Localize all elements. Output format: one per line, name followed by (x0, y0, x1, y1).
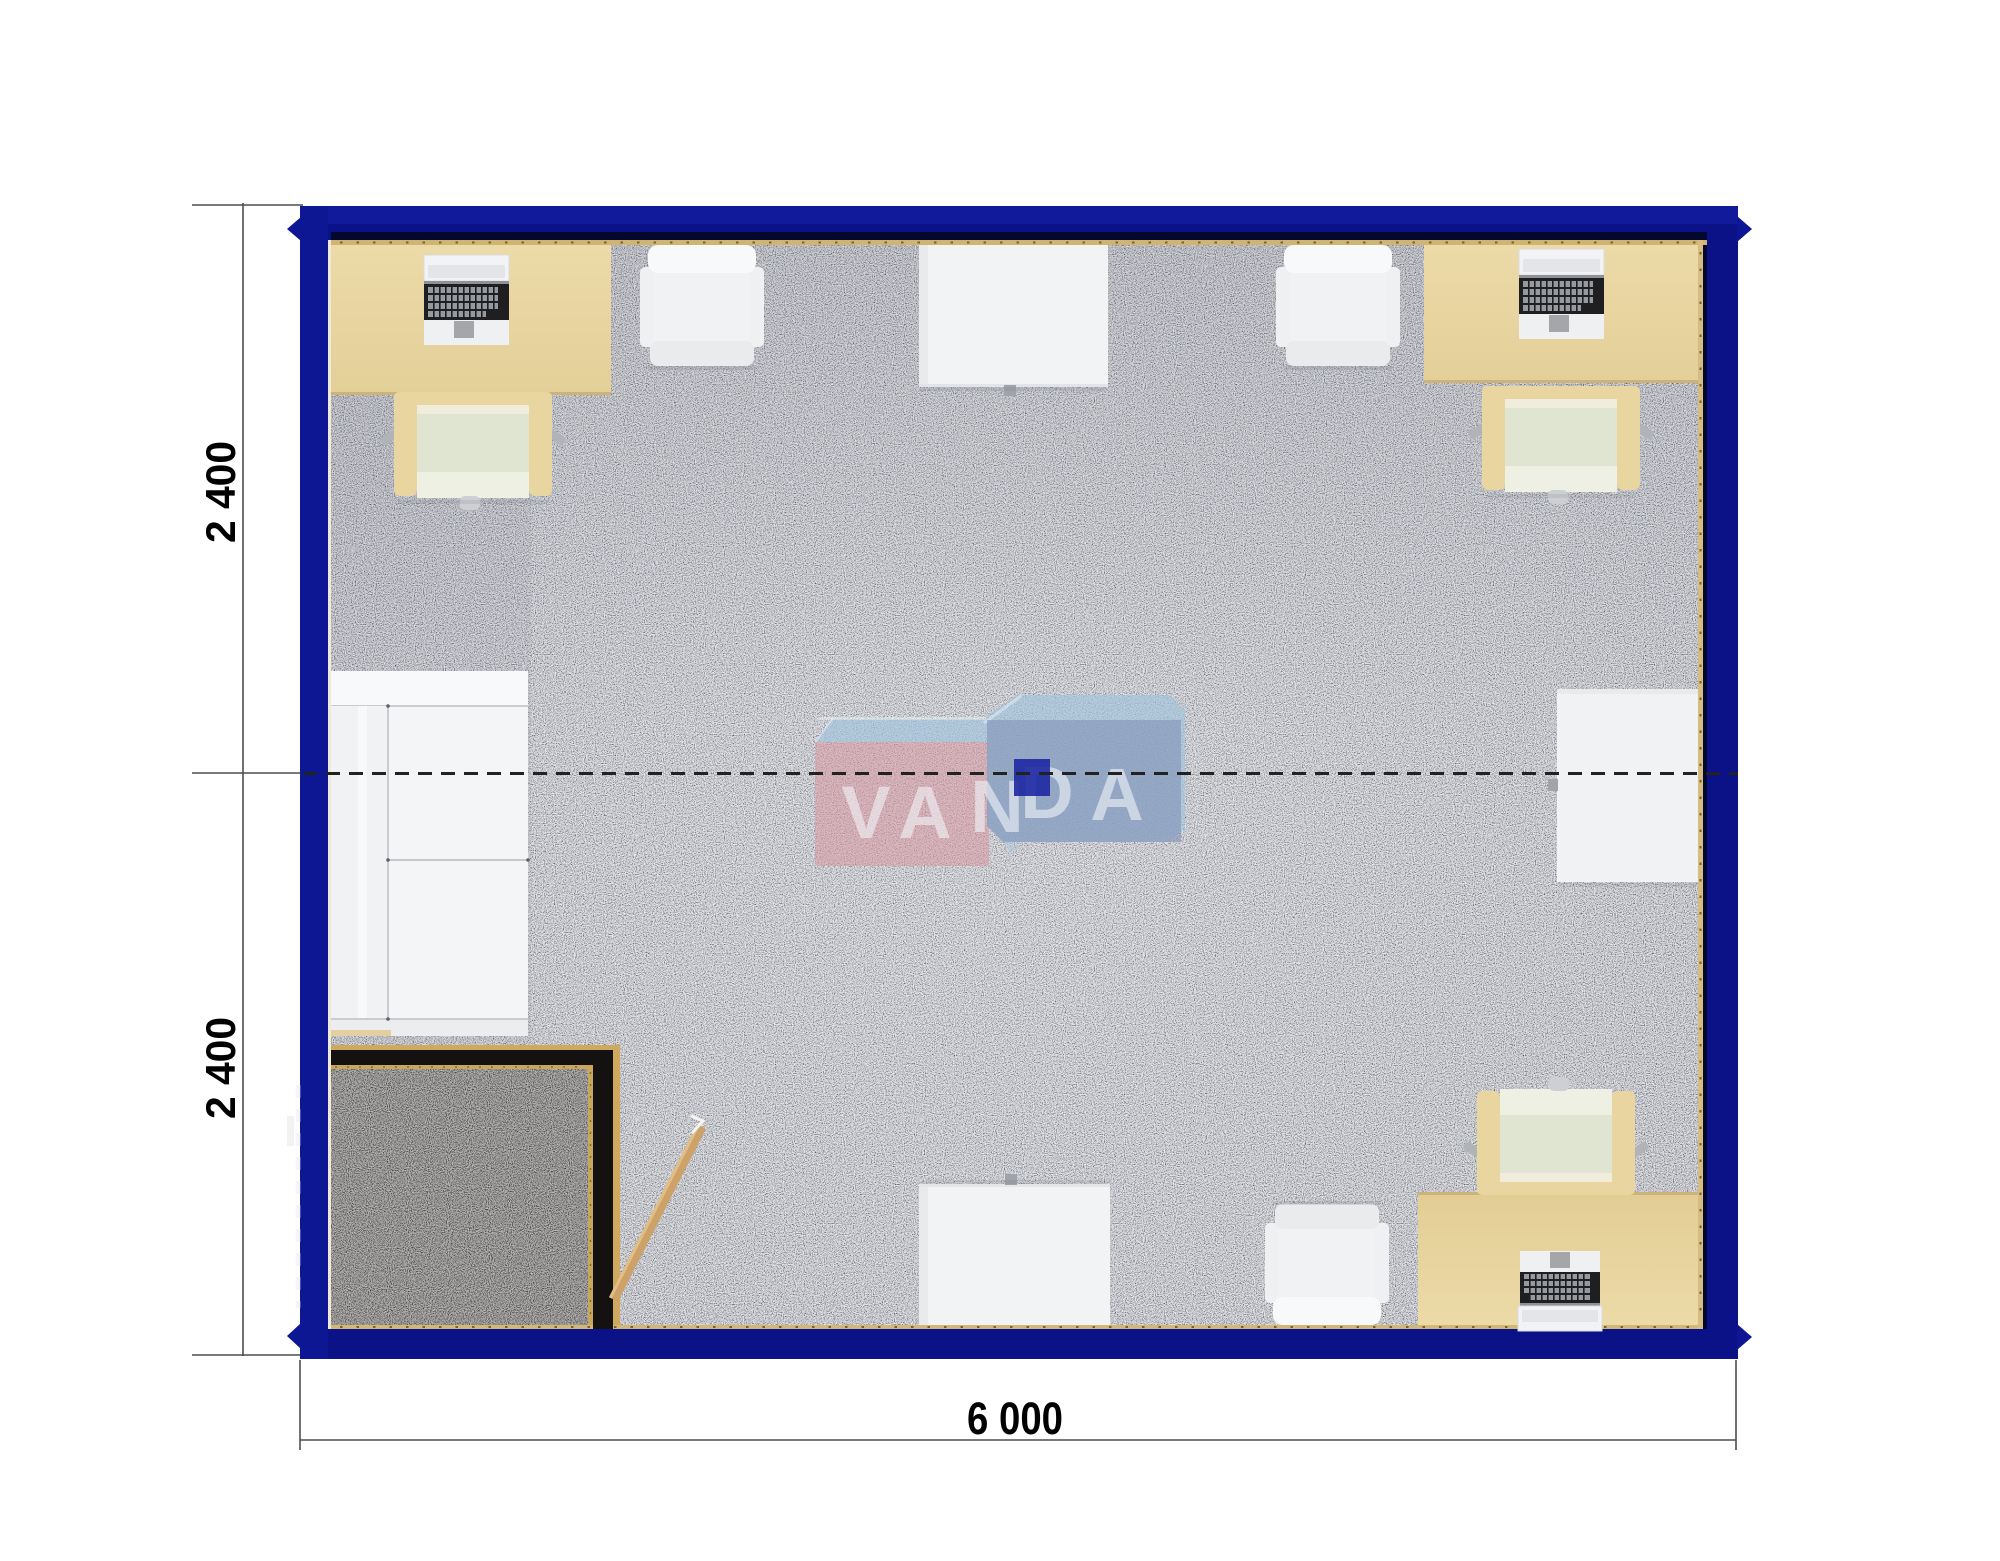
svg-text:2 400: 2 400 (197, 441, 244, 543)
svg-text:6 000: 6 000 (967, 1393, 1063, 1444)
svg-text:V: V (841, 771, 890, 854)
svg-text:A: A (898, 771, 951, 854)
svg-text:2 400: 2 400 (197, 1017, 244, 1119)
svg-text:A: A (1090, 753, 1143, 836)
